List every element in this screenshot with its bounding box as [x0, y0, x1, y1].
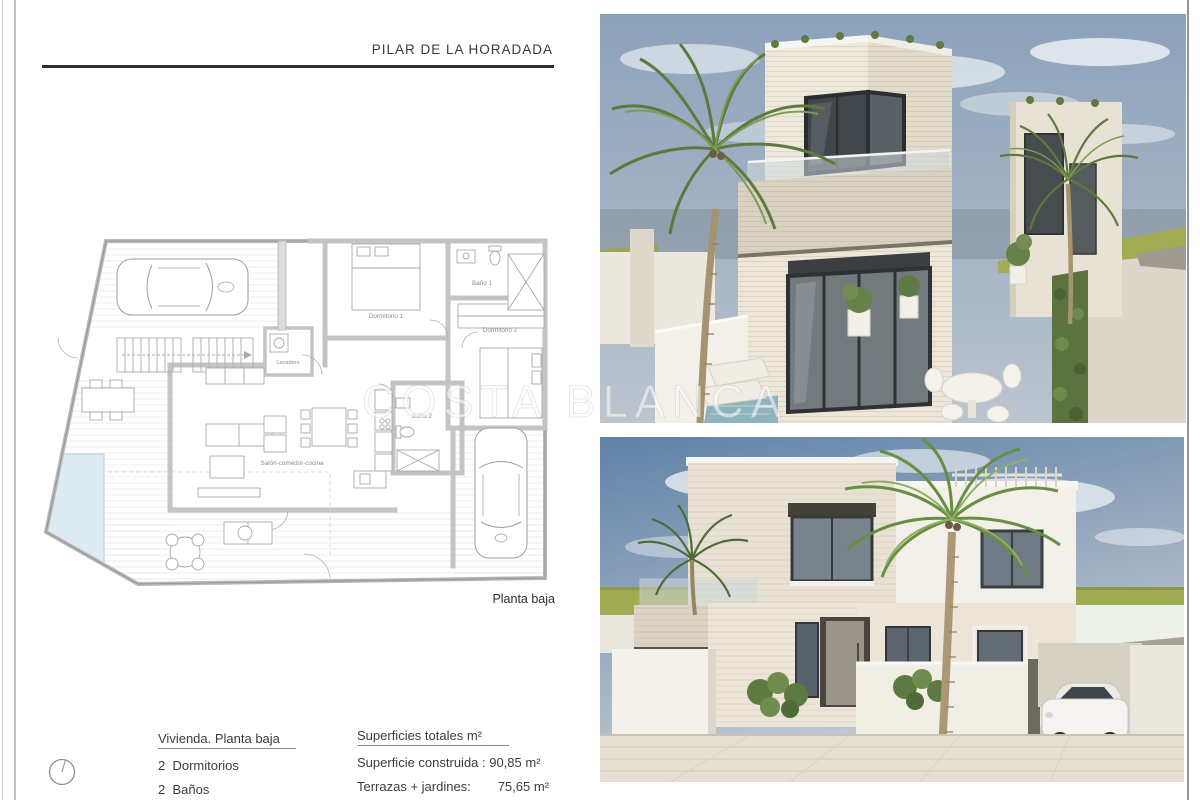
bedrooms-count: 2 Dormitorios [158, 758, 296, 773]
room-label-bath1: Baño 1 [472, 280, 492, 287]
north-compass-icon [45, 755, 81, 791]
title-rule [42, 65, 554, 68]
areas-summary: Superficies totales m² Superficie constr… [357, 728, 549, 794]
built-area: Superficie construida : 90,85 m² [357, 755, 549, 770]
plan-caption: Planta baja [492, 592, 555, 606]
dwelling-heading: Vivienda. Planta baja [158, 731, 296, 749]
room-label-bedroom1: Dormitorio 1 [369, 313, 404, 320]
page-border [1187, 0, 1189, 800]
scan-edge-line [14, 0, 16, 800]
room-label-bath2: Baño 2 [412, 413, 432, 420]
exterior-render-front [600, 437, 1184, 782]
exterior-render-perspective [600, 14, 1186, 423]
page-title: PILAR DE LA HORADADA [42, 42, 553, 57]
terrace-label: Terrazas + jardines: [357, 779, 471, 794]
areas-heading: Superficies totales m² [357, 728, 509, 746]
pavement [600, 735, 1184, 782]
room-label-living: Salón-comedor-cocina [261, 460, 324, 467]
bathrooms-count: 2 Baños [158, 782, 296, 797]
car-bottom-right [475, 428, 527, 558]
car-top-left [117, 259, 248, 315]
scan-edge-line [2, 0, 3, 800]
dwelling-summary: Vivienda. Planta baja 2 Dormitorios 2 Ba… [158, 731, 296, 797]
room-label-bedroom2: Dormitorio 2 [483, 327, 518, 334]
terrace-area: Terrazas + jardines: 75,65 m² [357, 779, 549, 794]
floor-plan: Dormitorio 1 Baño 1 Dormitorio 2 Lavader… [30, 228, 570, 613]
room-label-laundry: Lavadero [276, 360, 299, 366]
terrace-value: 75,65 m² [498, 779, 549, 794]
